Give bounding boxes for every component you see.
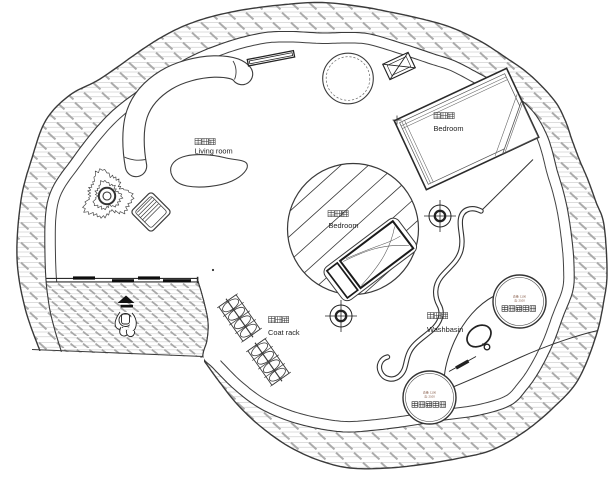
svg-text:Bedroom: Bedroom	[329, 221, 359, 230]
svg-text:高: 2100: 高: 2100	[514, 299, 525, 303]
svg-text:Living room: Living room	[195, 147, 233, 156]
svg-text:Washbasin: Washbasin	[427, 325, 463, 334]
svg-text:高: 2100: 高: 2100	[424, 395, 435, 399]
svg-text:Bedroom: Bedroom	[434, 124, 464, 133]
svg-text:Coat rack: Coat rack	[268, 328, 300, 337]
